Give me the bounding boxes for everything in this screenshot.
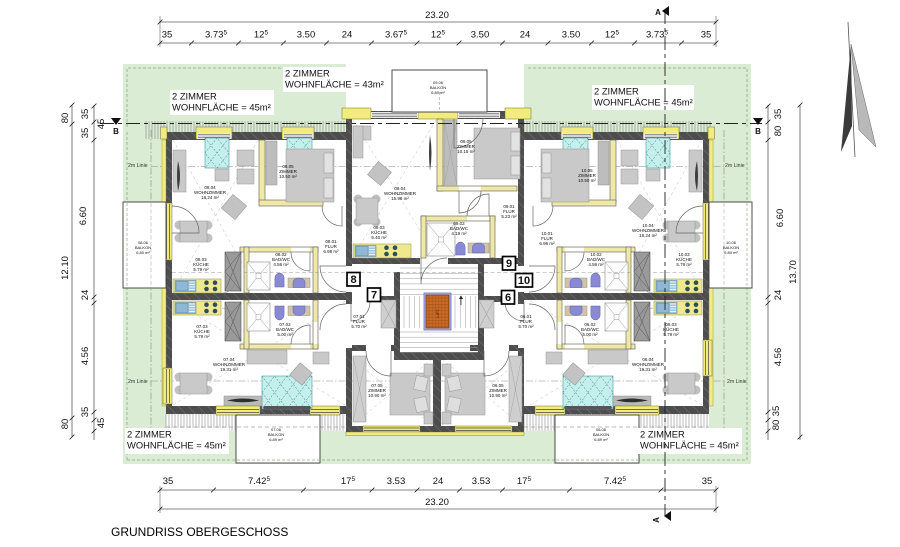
svg-text:35: 35 (702, 476, 713, 487)
svg-text:GRUNDRISS OBERGESCHOSS: GRUNDRISS OBERGESCHOSS (111, 525, 288, 539)
svg-text:A: A (652, 517, 661, 523)
svg-text:24: 24 (80, 290, 91, 301)
svg-text:LIFT: LIFT (435, 309, 440, 318)
svg-text:WOHNFLÄCHE = 45m²: WOHNFLÄCHE = 45m² (640, 440, 739, 451)
svg-text:45: 45 (96, 418, 107, 429)
svg-text:24: 24 (773, 290, 784, 301)
svg-text:12.10: 12.10 (60, 256, 71, 280)
svg-text:2 ZIMMER: 2 ZIMMER (640, 429, 685, 440)
svg-text:9: 9 (506, 258, 512, 270)
svg-text:6.60: 6.60 (78, 207, 89, 226)
svg-text:B: B (755, 127, 761, 136)
svg-text:3.50: 3.50 (297, 30, 316, 41)
svg-text:2 ZIMMER: 2 ZIMMER (594, 86, 639, 97)
svg-text:A: A (655, 8, 661, 17)
svg-text:13.70: 13.70 (788, 260, 799, 284)
svg-text:3.53: 3.53 (472, 476, 491, 487)
svg-text:WOHNFLÄCHE = 45m²: WOHNFLÄCHE = 45m² (172, 102, 271, 113)
svg-text:23.20: 23.20 (425, 10, 449, 21)
svg-text:45: 45 (96, 119, 107, 130)
svg-text:WOHNFLÄCHE = 43m²: WOHNFLÄCHE = 43m² (285, 79, 384, 90)
svg-text:2m Linie: 2m Linie (128, 163, 148, 169)
svg-text:35: 35 (771, 406, 782, 417)
svg-text:3.53: 3.53 (387, 476, 406, 487)
svg-text:35: 35 (80, 407, 91, 418)
svg-text:2 ZIMMER: 2 ZIMMER (172, 91, 217, 102)
svg-text:2m Linie: 2m Linie (725, 163, 745, 169)
svg-text:B: B (113, 127, 119, 136)
svg-text:4.56: 4.56 (80, 347, 91, 366)
svg-text:2 ZIMMER: 2 ZIMMER (127, 429, 172, 440)
svg-text:WOHNFLÄCHE = 45m²: WOHNFLÄCHE = 45m² (127, 440, 226, 451)
svg-text:80: 80 (60, 113, 71, 124)
svg-text:4.56: 4.56 (773, 348, 784, 367)
svg-text:80: 80 (60, 419, 71, 430)
svg-text:6: 6 (505, 292, 511, 304)
svg-text:7: 7 (371, 290, 377, 302)
svg-text:WOHNFLÄCHE = 45m²: WOHNFLÄCHE = 45m² (594, 97, 693, 108)
svg-text:23.20: 23.20 (425, 497, 449, 508)
svg-text:2m Linie: 2m Linie (128, 379, 148, 385)
svg-text:24: 24 (342, 30, 353, 41)
svg-text:35: 35 (80, 109, 91, 120)
svg-text:3.50: 3.50 (562, 30, 581, 41)
svg-text:35: 35 (80, 128, 91, 139)
svg-text:35: 35 (773, 109, 784, 120)
svg-text:80: 80 (773, 126, 784, 137)
svg-text:80: 80 (771, 420, 782, 431)
svg-text:2 ZIMMER: 2 ZIMMER (285, 68, 330, 79)
svg-text:8: 8 (350, 274, 356, 286)
svg-text:24: 24 (520, 30, 531, 41)
svg-text:35: 35 (701, 30, 712, 41)
svg-text:24: 24 (433, 476, 444, 487)
svg-text:3.50: 3.50 (471, 30, 490, 41)
svg-text:6.60: 6.60 (775, 209, 786, 228)
svg-text:35: 35 (162, 30, 173, 41)
svg-text:10: 10 (518, 275, 530, 287)
svg-text:35: 35 (163, 476, 174, 487)
svg-text:2m Linie: 2m Linie (727, 379, 747, 385)
